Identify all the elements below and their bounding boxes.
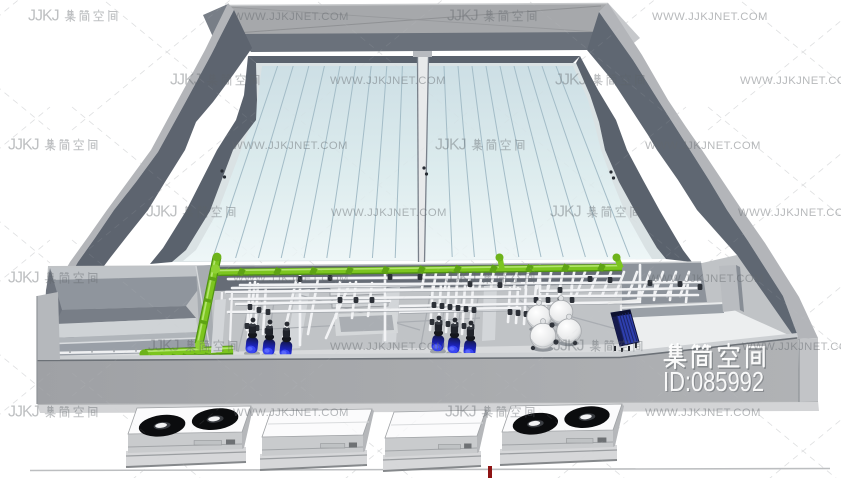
svg-text:WWW.JJKJNET.COM: WWW.JJKJNET.COM [330, 341, 446, 353]
svg-text:WWW.JJKJNET.COM: WWW.JJKJNET.COM [232, 140, 348, 152]
svg-text:JJKJ: JJKJ [445, 404, 476, 421]
svg-text:JJKJ: JJKJ [8, 270, 39, 287]
svg-text:JJKJ: JJKJ [8, 137, 39, 154]
svg-text:WWW.JJKJNET.COM: WWW.JJKJNET.COM [233, 11, 349, 23]
svg-text:JJKJ: JJKJ [8, 404, 39, 421]
svg-text:WWW.JJKJNET.COM: WWW.JJKJNET.COM [652, 11, 768, 23]
svg-text:JJKJ: JJKJ [146, 204, 177, 221]
svg-text:WWW.JJKJNET.COM: WWW.JJKJNET.COM [738, 207, 841, 219]
svg-text:WWW.JJKJNET.COM: WWW.JJKJNET.COM [740, 75, 841, 87]
svg-text:WWW.JJKJNET.COM: WWW.JJKJNET.COM [331, 207, 447, 219]
svg-text:JJKJ: JJKJ [445, 270, 476, 287]
svg-text:ID:085992: ID:085992 [663, 366, 764, 397]
svg-text:WWW.JJKJNET.COM: WWW.JJKJNET.COM [233, 273, 349, 285]
svg-text:JJKJ: JJKJ [435, 137, 466, 154]
svg-text:JJKJ: JJKJ [555, 72, 586, 89]
svg-text:JJKJ: JJKJ [447, 8, 478, 25]
svg-text:WWW.JJKJNET.COM: WWW.JJKJNET.COM [742, 341, 841, 353]
svg-text:JJKJ: JJKJ [148, 338, 179, 355]
svg-text:JJKJ: JJKJ [28, 8, 59, 25]
svg-text:JJKJ: JJKJ [170, 72, 201, 89]
svg-text:WWW.JJKJNET.COM: WWW.JJKJNET.COM [648, 273, 764, 285]
svg-text:WWW.JJKJNET.COM: WWW.JJKJNET.COM [645, 140, 761, 152]
svg-text:WWW.JJKJNET.COM: WWW.JJKJNET.COM [233, 407, 349, 419]
svg-text:WWW.JJKJNET.COM: WWW.JJKJNET.COM [330, 75, 446, 87]
svg-text:JJKJ: JJKJ [553, 338, 584, 355]
svg-text:WWW.JJKJNET.COM: WWW.JJKJNET.COM [645, 407, 761, 419]
